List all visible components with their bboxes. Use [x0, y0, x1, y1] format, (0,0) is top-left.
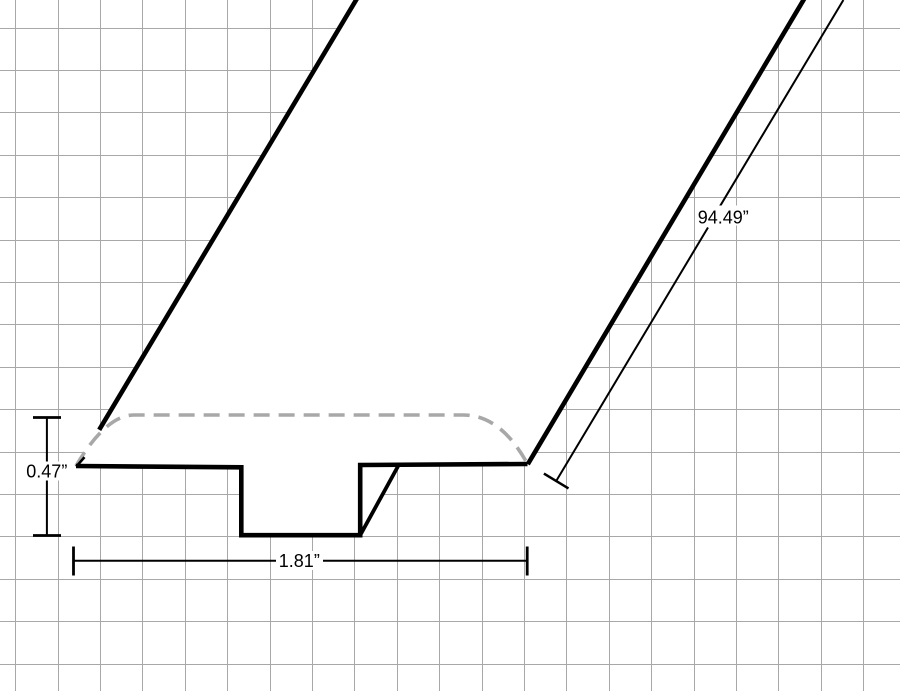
- svg-text:1.81”: 1.81”: [279, 551, 320, 571]
- svg-text:0.47”: 0.47”: [26, 462, 67, 482]
- svg-text:94.49”: 94.49”: [698, 208, 749, 228]
